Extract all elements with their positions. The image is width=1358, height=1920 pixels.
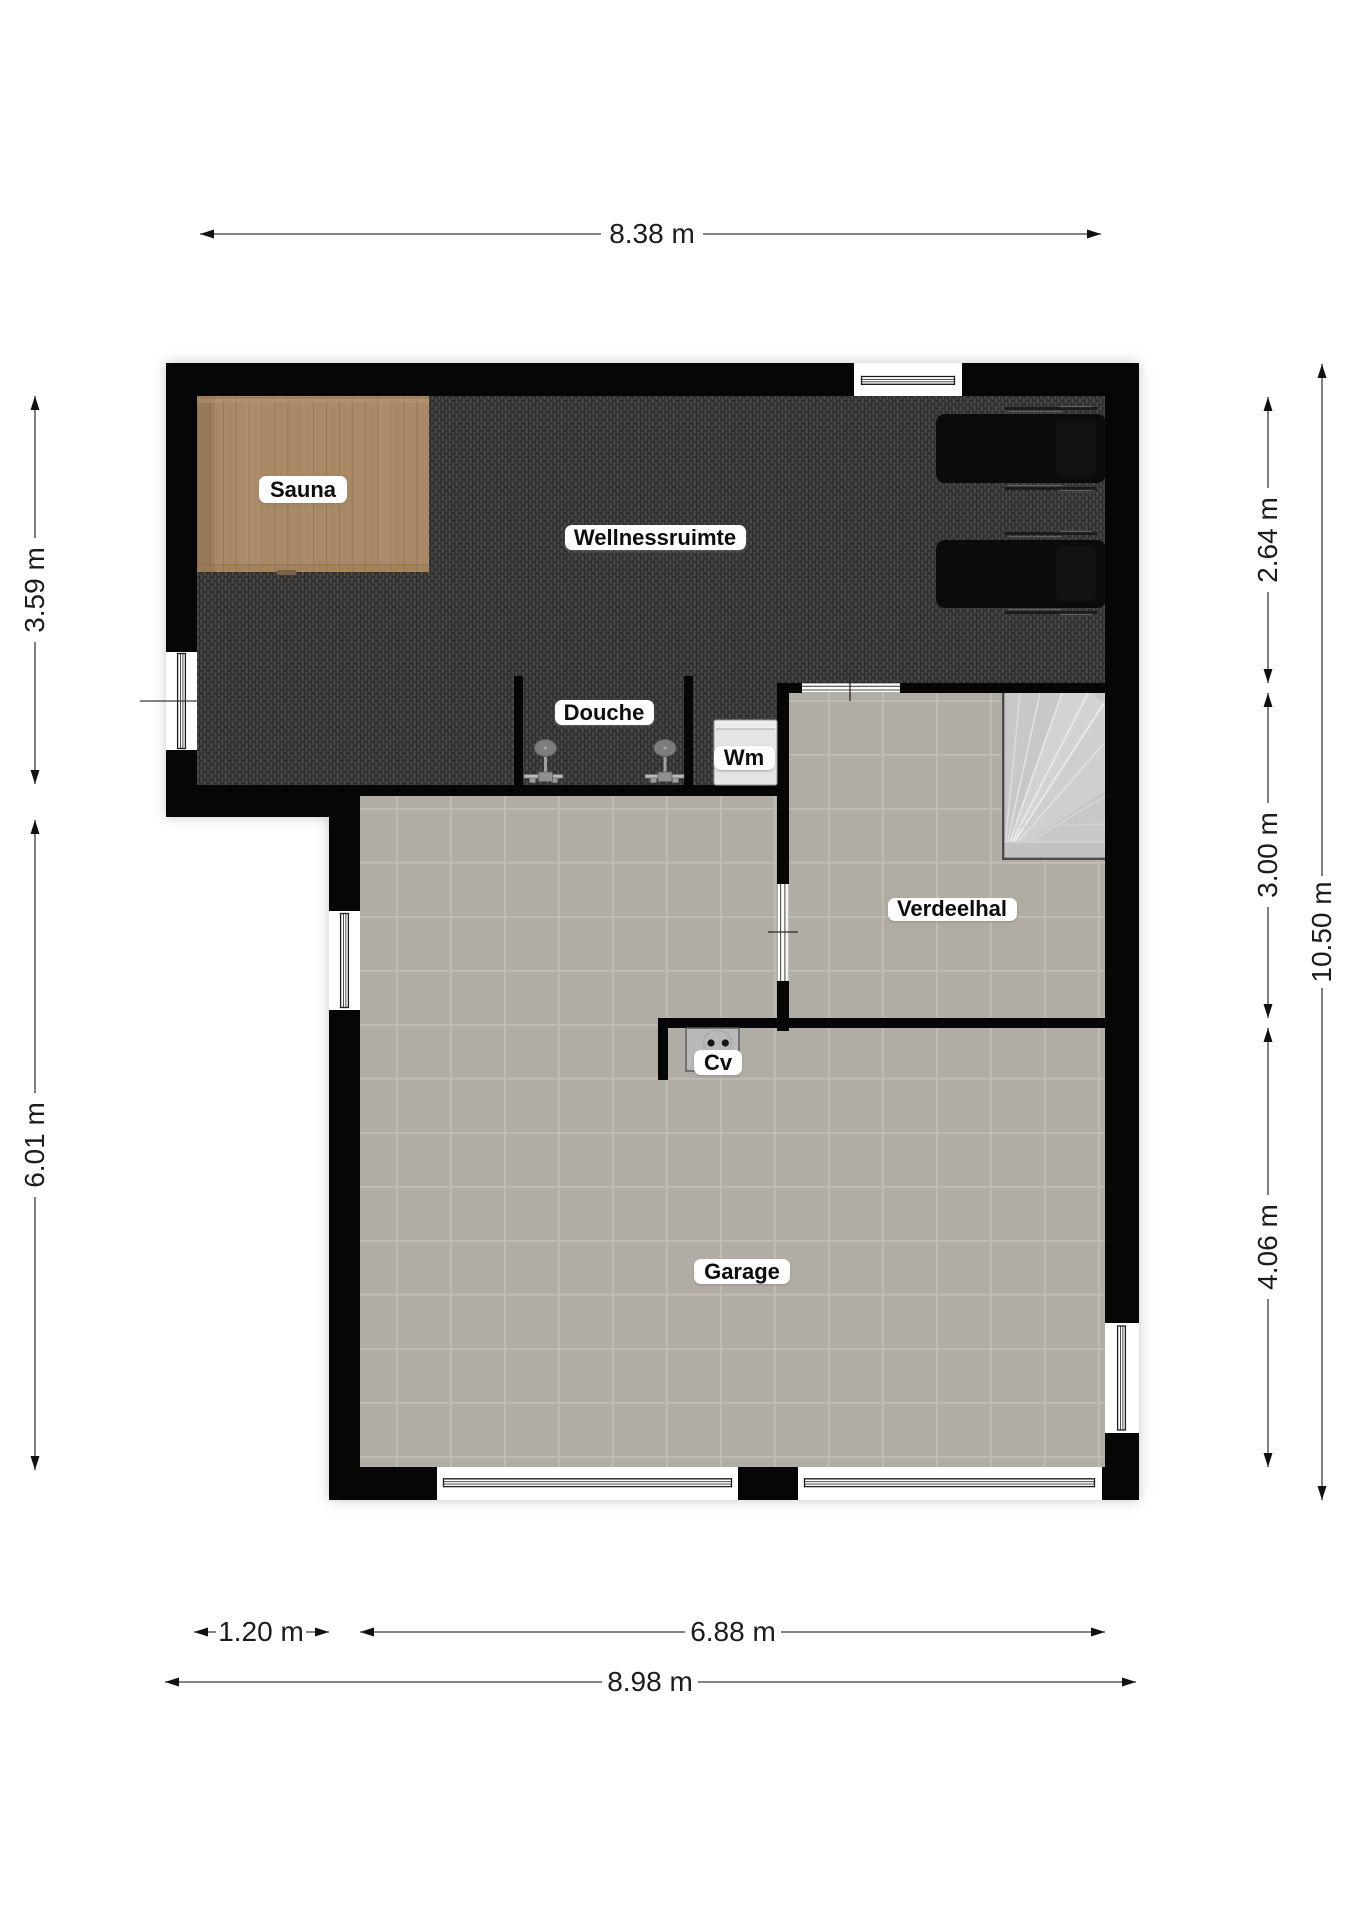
svg-text:2.64 m: 2.64 m [1252, 497, 1283, 583]
svg-text:Douche: Douche [564, 700, 645, 725]
svg-text:8.98 m: 8.98 m [607, 1666, 693, 1697]
svg-text:6.88 m: 6.88 m [690, 1616, 776, 1647]
svg-text:Verdeelhal: Verdeelhal [897, 896, 1007, 921]
svg-text:Garage: Garage [704, 1259, 780, 1284]
svg-text:4.06 m: 4.06 m [1252, 1204, 1283, 1290]
svg-text:1.20 m: 1.20 m [218, 1616, 304, 1647]
svg-text:Wellnessruimte: Wellnessruimte [574, 525, 736, 550]
svg-text:8.38 m: 8.38 m [609, 218, 695, 249]
svg-text:3.00 m: 3.00 m [1252, 812, 1283, 898]
svg-text:6.01 m: 6.01 m [19, 1102, 50, 1188]
svg-text:3.59 m: 3.59 m [19, 547, 50, 633]
svg-text:Wm: Wm [724, 745, 764, 770]
svg-text:Sauna: Sauna [270, 477, 337, 502]
svg-text:10.50 m: 10.50 m [1306, 881, 1337, 982]
svg-text:Cv: Cv [704, 1050, 733, 1075]
